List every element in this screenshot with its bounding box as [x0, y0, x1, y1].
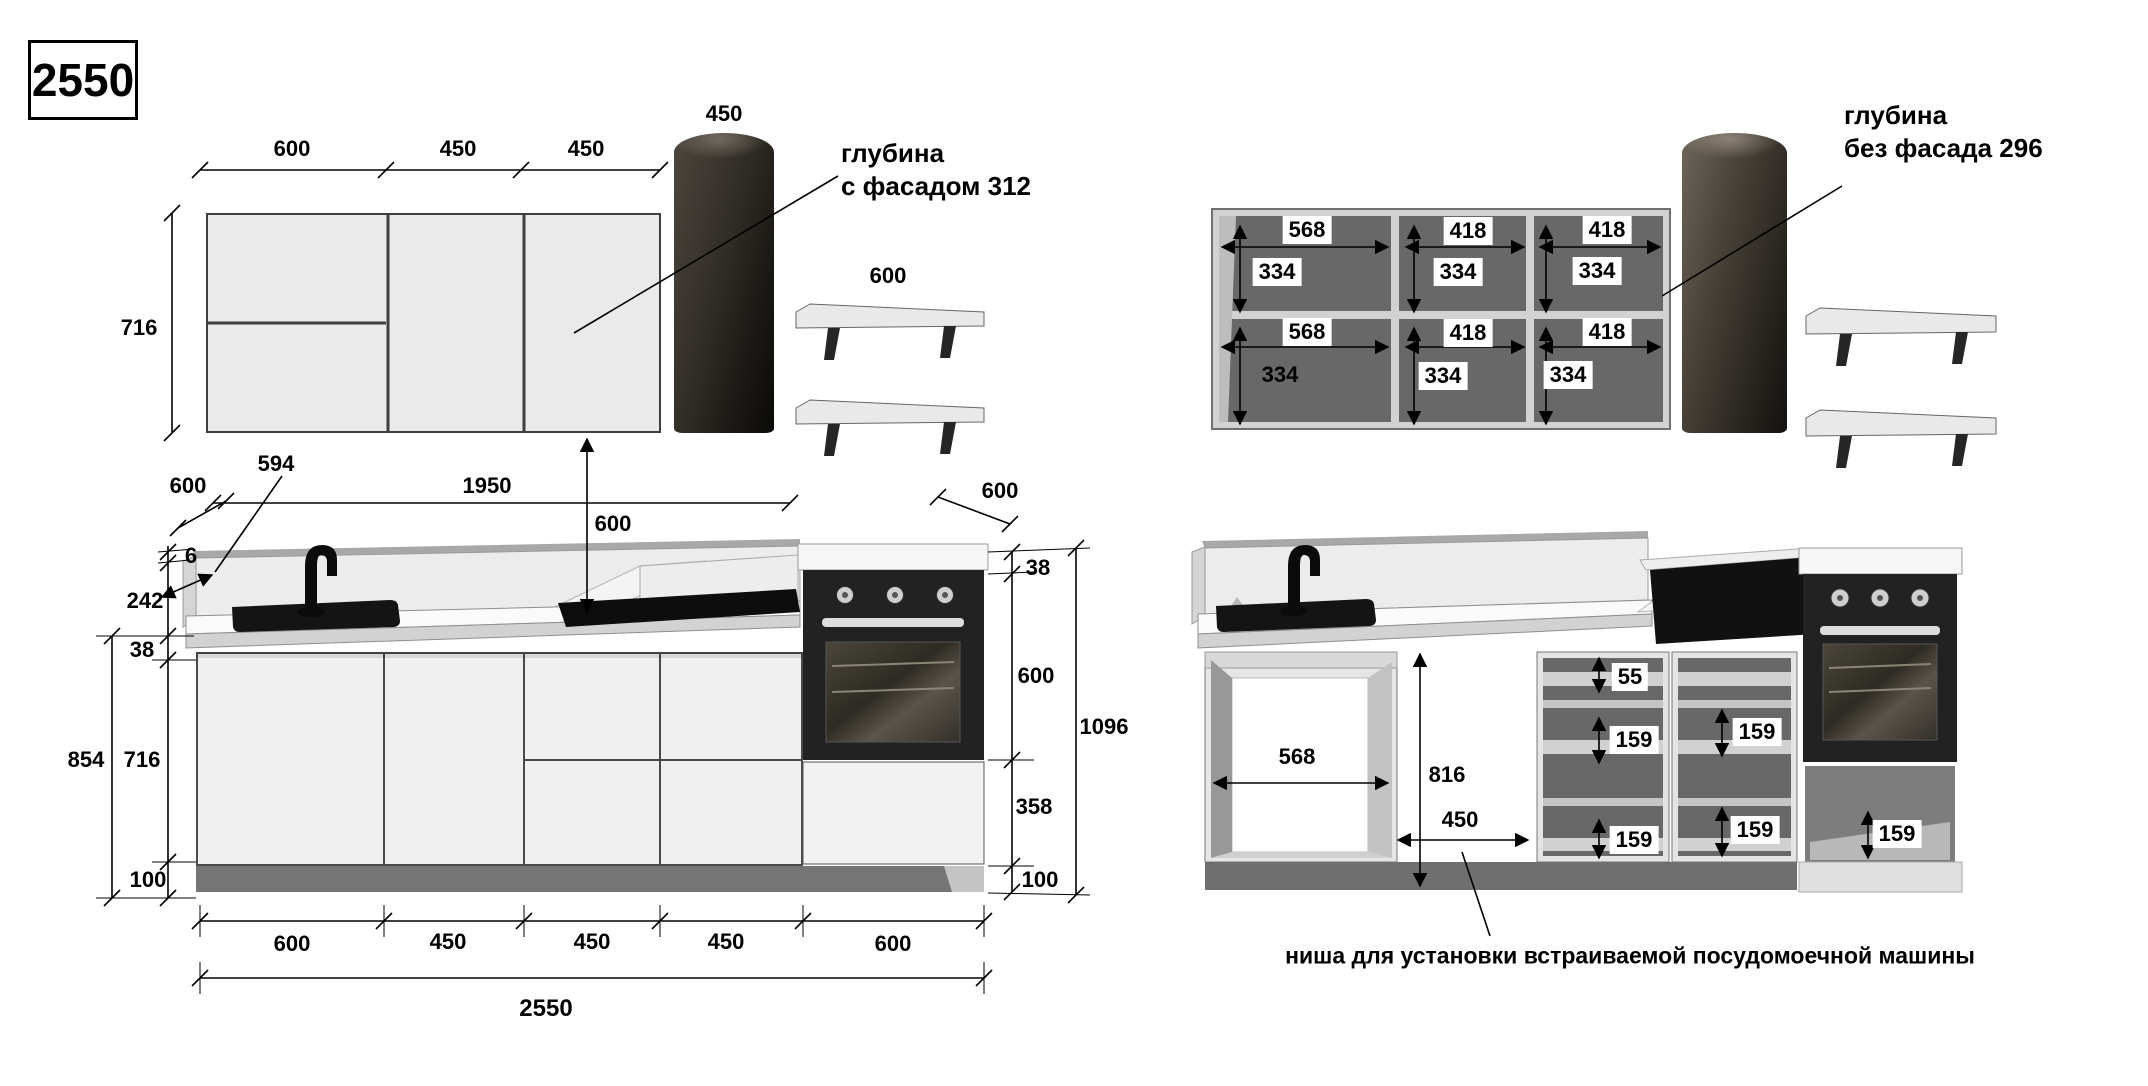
dim-bottom-450a: 450 — [430, 931, 467, 953]
linework-layer — [0, 0, 2148, 1086]
depth-note-left-line2: с фасадом 312 — [841, 170, 1031, 203]
dim-600-depth-left: 600 — [170, 475, 207, 497]
dim-600-oven: 600 — [1018, 665, 1055, 687]
dim-top-600: 600 — [274, 138, 311, 160]
comp4-width: 568 — [1283, 318, 1332, 346]
dishwasher-note: ниша для установки встраиваемой посудомо… — [1285, 945, 1975, 968]
dim-242: 242 — [127, 590, 164, 612]
dim-600-shelf-depth: 600 — [982, 480, 1019, 502]
comp1-width: 568 — [1283, 216, 1332, 244]
depth-note-right: глубина без фасада 296 — [1844, 99, 2043, 165]
dim-oven-drawer-159: 159 — [1873, 820, 1922, 848]
dim-shelf-600: 600 — [870, 265, 907, 287]
total-width-title-box: 2550 — [28, 40, 138, 120]
depth-note-left: глубина с фасадом 312 — [841, 137, 1031, 203]
comp3-width: 418 — [1583, 216, 1632, 244]
dim-top-450a: 450 — [440, 138, 477, 160]
dim-1950: 1950 — [463, 475, 512, 497]
dim-600-gap: 600 — [595, 513, 632, 535]
comp4-height: 334 — [1262, 364, 1299, 386]
dim-bottom-600b: 600 — [875, 933, 912, 955]
dim-1096: 1096 — [1080, 716, 1129, 738]
depth-note-left-line1: глубина — [841, 137, 1031, 170]
dim-bottom-450b: 450 — [574, 931, 611, 953]
dim-drawerB-159a: 159 — [1733, 718, 1782, 746]
dim-100-right: 100 — [1022, 869, 1059, 891]
comp2-width: 418 — [1444, 217, 1493, 245]
dim-100-left: 100 — [130, 869, 167, 891]
comp5-height: 334 — [1419, 362, 1468, 390]
comp6-width: 418 — [1583, 318, 1632, 346]
dim-drawerB-159b: 159 — [1731, 816, 1780, 844]
dim-drawerA-159a: 159 — [1610, 726, 1659, 754]
depth-note-right-line2: без фасада 296 — [1844, 132, 2043, 165]
kitchen-drawing-canvas: 2550 — [0, 0, 2148, 1086]
comp1-height: 334 — [1253, 258, 1302, 286]
dim-top-450b: 450 — [568, 138, 605, 160]
dim-bottom-600a: 600 — [274, 933, 311, 955]
dim-594: 594 — [258, 453, 295, 475]
dim-niche-816: 816 — [1429, 764, 1466, 786]
dim-854: 854 — [68, 749, 105, 771]
dim-bottom-450c: 450 — [708, 931, 745, 953]
dim-38-right: 38 — [1026, 557, 1050, 579]
dim-niche-450: 450 — [1442, 809, 1479, 831]
dim-drawerA-159b: 159 — [1610, 826, 1659, 854]
left-view-structure — [183, 215, 988, 892]
dim-column-450: 450 — [706, 103, 743, 125]
comp6-height: 334 — [1544, 361, 1593, 389]
comp2-height: 334 — [1434, 258, 1483, 286]
comp3-height: 334 — [1573, 257, 1622, 285]
dim-358: 358 — [1016, 796, 1053, 818]
dim-38-left: 38 — [130, 639, 154, 661]
dim-drawerA-55: 55 — [1612, 663, 1648, 691]
depth-note-right-line1: глубина — [1844, 99, 2043, 132]
dim-sink-568: 568 — [1279, 746, 1316, 768]
comp5-width: 418 — [1444, 319, 1493, 347]
dim-total-2550: 2550 — [519, 997, 572, 1021]
dim-716-base: 716 — [124, 749, 161, 771]
dim-716-upper: 716 — [121, 317, 158, 339]
dim-6: 6 — [185, 545, 197, 567]
